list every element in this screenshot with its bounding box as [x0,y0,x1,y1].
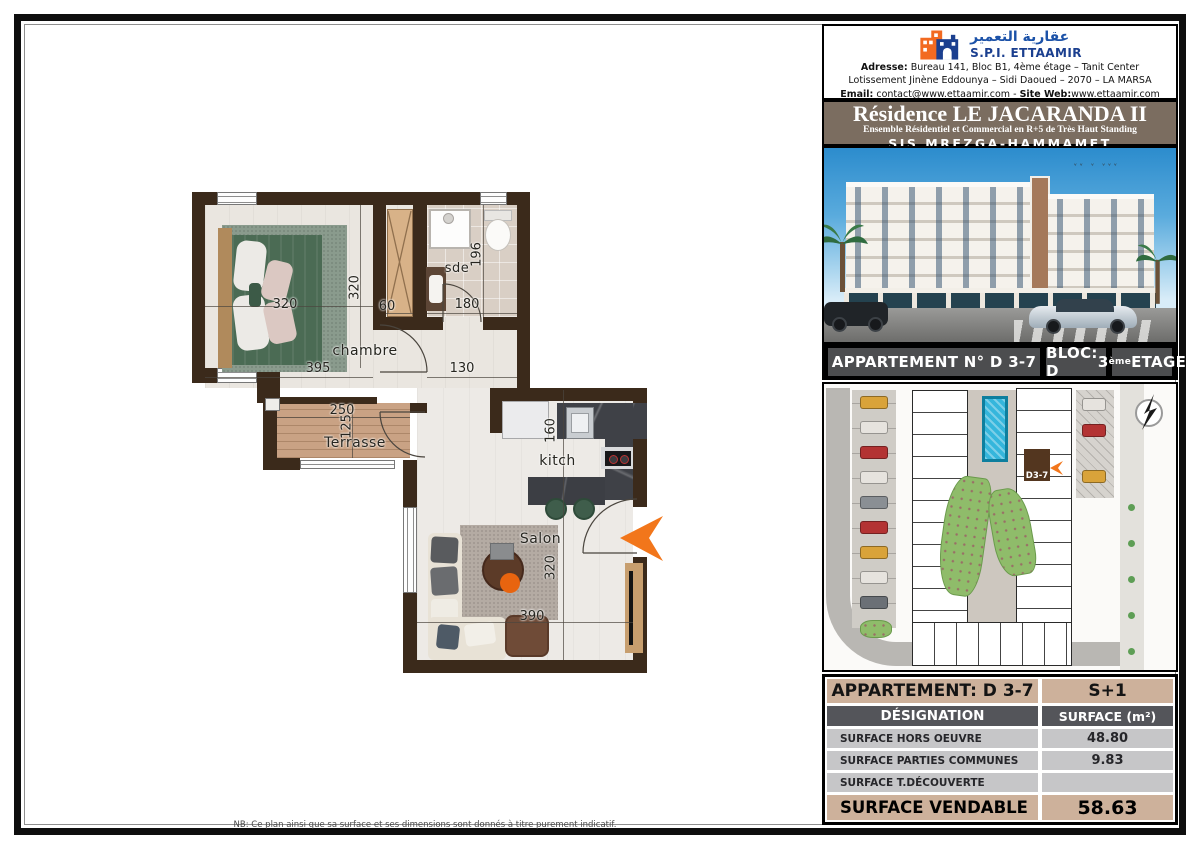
table-row-value: 9.83 [1042,751,1173,770]
floor-plan: 320 320 395 60 180 196 sde chambre 130 2… [185,185,665,690]
dim-bathroom-width: 180 [443,297,491,312]
disclaimer-note: NB: Ce plan ainsi que sa surface et ses … [185,820,665,830]
parked-car [860,446,888,459]
floor-badge: 3ème ETAGE [1112,348,1172,376]
car-wheel [832,317,847,332]
table-type-header: S+1 [1042,679,1173,703]
palm-tree-icon [822,204,868,294]
apartment-number-badge: APPARTEMENT N° D 3-7 [828,348,1040,376]
dim-bedroom-depth: 320 [348,268,363,308]
parked-car [860,571,888,584]
table-row-label: SURFACE T.DÉCOUVERTE [827,773,1038,792]
dim-living-depth: 320 [544,548,559,588]
unit-info-bar: APPARTEMENT N° D 3-7 BLOC: D 3ème ETAGE [822,344,1178,380]
swimming-pool [982,396,1008,462]
entry-door [583,499,637,553]
car-cabin [1056,299,1114,312]
plan-overlay [185,185,665,690]
company-address-line2: Lotissement Jinène Eddounya – Sidi Daoue… [824,74,1176,87]
parked-car [860,521,888,534]
parked-car [1082,470,1106,483]
label-bedroom: chambre [330,343,400,359]
company-contact-line: Email: contact@www.ettaamir.com - Site W… [824,88,1176,101]
company-header: عقارية التعمير S.P.I. ETTAAMIR Adresse: … [822,24,1178,100]
company-email[interactable]: contact@www.ettaamir.com [876,89,1010,100]
table-row-value [1042,773,1173,792]
parked-car [860,396,888,409]
dim-closet: 60 [375,299,399,314]
label-terrace: Terrasse [320,435,390,451]
dim-hall: 130 [438,361,486,376]
parked-car [1082,424,1106,437]
car-wheel [1046,319,1061,334]
garden [860,620,892,638]
plan-sheet-page: 320 320 395 60 180 196 sde chambre 130 2… [0,0,1200,849]
table-apartment-header: APPARTEMENT: D 3-7 [827,679,1038,703]
compass-north-icon [1130,392,1168,432]
dim-kitchen-depth: 160 [544,411,559,451]
site-plan: D3-7 [822,382,1178,672]
company-website[interactable]: www.ettaamir.com [1071,89,1160,100]
table-row-label: SURFACE HORS OEUVRE [827,729,1038,748]
dim-living-width: 390 [507,609,557,624]
parked-car [860,596,888,609]
company-name-latin: S.P.I. ETTAAMIR [970,46,1082,60]
label-living: Salon [513,531,568,547]
residence-title: Résidence LE JACARANDA II [824,103,1176,125]
car-wheel [1110,319,1125,334]
label-kitchen: kitch [530,453,585,469]
company-name-arabic: عقارية التعمير [970,30,1082,45]
dim-bed-width: 320 [260,297,310,312]
building-windows [846,187,1044,290]
label-bathroom: sde [437,261,477,276]
entry-arrow-icon [620,516,663,561]
parked-car [860,496,888,509]
parked-car [1082,398,1106,411]
table-row-label: SURFACE PARTIES COMMUNES [827,751,1038,770]
table-total-value: 58.63 [1042,795,1173,820]
parked-car [860,546,888,559]
table-total-label: SURFACE VENDABLE [827,795,1038,820]
table-row-value: 48.80 [1042,729,1173,748]
unit-marker[interactable]: D3-7 [1024,449,1050,481]
building-corner-tower [1030,176,1050,290]
residence-banner: Résidence LE JACARANDA II Ensemble Résid… [822,100,1178,146]
company-address-line1: Adresse: Bureau 141, Bloc B1, 4ème étage… [824,61,1176,74]
unit-arrow-icon [1048,460,1064,476]
trees [1128,504,1135,511]
residence-subtitle: Ensemble Résidentiel et Commercial en R+… [824,125,1176,136]
table-col-surface: SURFACE (m²) [1042,706,1173,726]
palm-tree-icon [1136,226,1178,306]
car-wheel [868,317,883,332]
building-render: ᵛᵛ ᵛ ᵛᵛᵛ [822,146,1178,344]
parked-car [860,421,888,434]
surface-table: APPARTEMENT: D 3-7 S+1 DÉSIGNATION SURFA… [822,674,1178,825]
dim-bedroom-width: 395 [293,361,343,376]
birds: ᵛᵛ ᵛ ᵛᵛᵛ [1074,162,1134,176]
company-logo-icon [918,29,962,61]
building-wing-bottom [912,622,1072,666]
table-col-designation: DÉSIGNATION [827,706,1038,726]
parked-car [860,471,888,484]
